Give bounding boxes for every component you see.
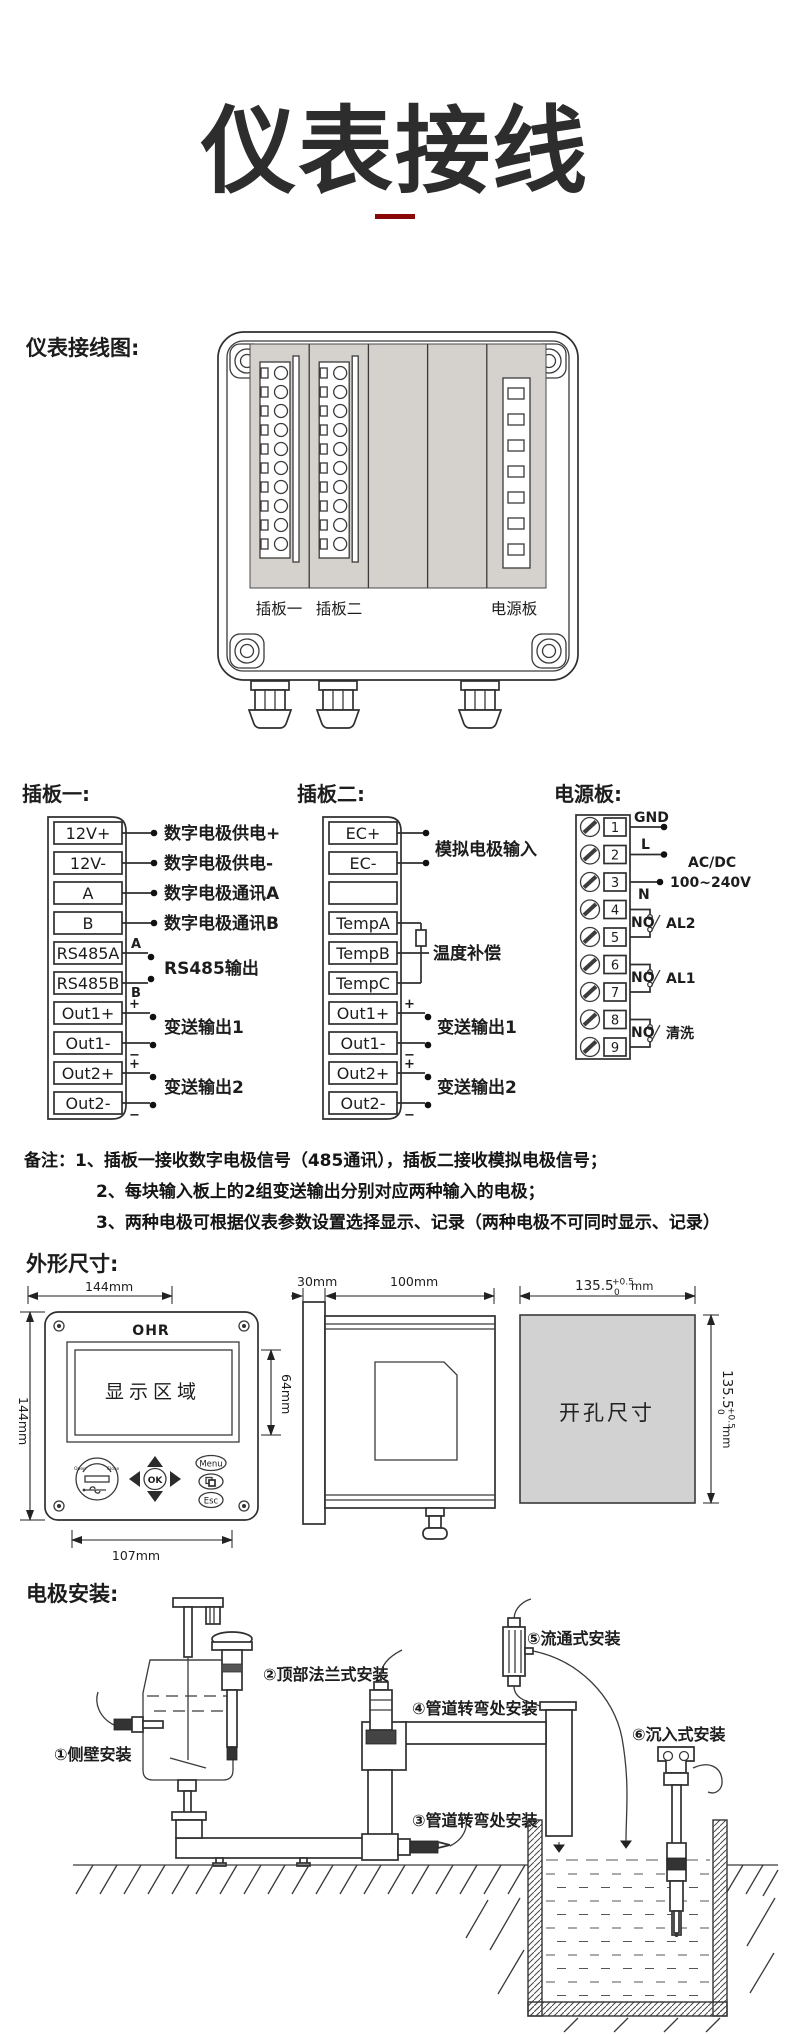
svg-text:温度补偿: 温度补偿 — [433, 943, 501, 964]
no-label: NO — [631, 970, 655, 986]
svg-text:107mm: 107mm — [112, 1548, 160, 1563]
dim-side-depths: 30mm 100mm — [291, 1274, 494, 1304]
display-area-label: 显示区域 — [105, 1381, 201, 1403]
device-wiring-diagram: 插板一 插板二 电源板 — [216, 330, 582, 750]
wire-mark-plus: + — [404, 1057, 415, 1072]
power-slot-label: 电源板 — [491, 600, 538, 618]
svg-text:变送输出2: 变送输出2 — [164, 1077, 244, 1098]
no-label: NO — [631, 1025, 655, 1041]
electrode-sidewall — [97, 1692, 163, 1732]
power-board-diagram: 电源板: 1 2 3 4 5 6 7 8 9 GND L N AC/DC 100… — [548, 775, 790, 1105]
svg-text:144mm: 144mm — [85, 1279, 133, 1294]
power-wires: GND L N AC/DC 100~240V NO AL2 NO AL1 NO … — [630, 810, 751, 1047]
dim-front-height: 144mm — [16, 1312, 45, 1520]
svg-text:数字电极通讯B: 数字电极通讯B — [164, 913, 279, 934]
n-label: N — [638, 887, 650, 903]
wire-mark-a: A — [131, 937, 141, 952]
svg-text:135.5: 135.5 — [575, 1278, 614, 1294]
cable-outflow-arrow — [621, 1840, 631, 1848]
terminal-label: 12V- — [70, 854, 106, 873]
wire-mark-plus: + — [129, 997, 140, 1012]
temp-resistor — [416, 930, 426, 946]
dim-front-bottom: 107mm — [72, 1530, 232, 1563]
terminal-label: Out1- — [66, 1034, 111, 1053]
board1-diagram: 插板一: 12V+ 12V- A B RS485A RS485B Out1+ O… — [18, 775, 296, 1135]
terminal-label: Out2- — [341, 1094, 386, 1113]
reaction-tank — [143, 1598, 233, 1813]
svg-text:7: 7 — [611, 986, 619, 1001]
svg-text:变送输出1: 变送输出1 — [164, 1017, 244, 1038]
board1-wires: A B + − + − — [122, 830, 157, 1123]
terminal-label: Out2+ — [62, 1064, 115, 1083]
install-label-6: ⑥沉入式安装 — [632, 1725, 726, 1744]
terminal-label: Out1+ — [62, 1004, 115, 1023]
svg-text:0: 0 — [715, 1409, 725, 1415]
side-view-drawing: 30mm 100mm — [290, 1270, 510, 1566]
wash-label: 清洗 — [666, 1025, 694, 1042]
slot1-terminal-strip — [260, 356, 299, 562]
terminal-label: Out1+ — [337, 1004, 390, 1023]
note-line-2: 2、每块输入板上的2组变送输出分别对应两种输入的电极； — [24, 1177, 784, 1208]
title-divider — [375, 214, 415, 219]
svg-text:5: 5 — [611, 931, 619, 946]
svg-text:变送输出2: 变送输出2 — [437, 1077, 517, 1098]
power-terminal-strip — [503, 378, 530, 568]
power-title: 电源板: — [554, 782, 622, 806]
svg-text:4: 4 — [611, 904, 619, 919]
ok-button-label[interactable]: OK — [148, 1476, 164, 1486]
electrode-flow-cell — [503, 1599, 545, 1708]
terminal-label: RS485B — [57, 974, 120, 993]
no-label: NO — [631, 915, 655, 931]
page-title: 仪表接线 — [0, 98, 790, 207]
terminal-label: Out2+ — [337, 1064, 390, 1083]
terminal-label: EC+ — [346, 824, 381, 843]
dim-front-width: 144mm — [28, 1279, 172, 1304]
board2-annotations: 模拟电极输入 温度补偿 变送输出1 变送输出2 — [433, 839, 537, 1098]
wire-mark-plus: + — [404, 997, 415, 1012]
board1-title: 插板一: — [22, 782, 90, 806]
installation-diagram: ①侧壁安装 ②顶部法兰式安装 ⑤流通式安装 — [18, 1598, 780, 2034]
svg-text:8: 8 — [611, 1014, 619, 1029]
svg-text:变送输出1: 变送输出1 — [437, 1017, 517, 1038]
notes-block: 备注：1、插板一接收数字电极信号（485通讯），插板二接收模拟电极信号； 2、每… — [24, 1146, 784, 1239]
svg-text:144mm: 144mm — [16, 1397, 31, 1445]
cutout-label: 开孔尺寸 — [559, 1401, 655, 1425]
front-view-drawing: 144mm 144mm OHR 显示区域 Open Close OK Menu — [5, 1270, 295, 1566]
usb-open-label: Open — [74, 1466, 86, 1472]
svg-text:100mm: 100mm — [390, 1274, 438, 1289]
slot1-label: 插板一 — [256, 600, 303, 618]
svg-text:6: 6 — [611, 959, 619, 974]
install-label-1: ①侧壁安装 — [54, 1745, 132, 1764]
svg-text:9: 9 — [611, 1041, 619, 1056]
dim-cutout-height: 135.5 +0.5 0 mm — [703, 1315, 736, 1503]
slot2-terminal-strip — [319, 356, 358, 562]
svg-text:RS485输出: RS485输出 — [164, 958, 259, 979]
board1-annotations: 数字电极供电+ 数字电极供电- 数字电极通讯A 数字电极通讯B RS485输出 … — [164, 823, 280, 1098]
l-label: L — [641, 837, 650, 853]
install-label-2: ②顶部法兰式安装 — [263, 1665, 389, 1684]
terminal-label: TempA — [335, 914, 390, 933]
brand-logo: OHR — [132, 1323, 169, 1339]
board2-diagram: 插板二: EC+ EC- TempA TempB TempC Out1+ Out… — [293, 775, 543, 1135]
notes-prefix: 备注： — [24, 1151, 75, 1171]
svg-text:30mm: 30mm — [297, 1274, 337, 1289]
svg-text:135.5: 135.5 — [719, 1370, 735, 1409]
svg-text:数字电极供电+: 数字电极供电+ — [164, 823, 280, 844]
terminal-label: B — [83, 914, 94, 933]
svg-text:数字电极通讯A: 数字电极通讯A — [164, 883, 280, 904]
dim-cutout-width: 135.5 +0.5 0 mm — [520, 1278, 695, 1305]
terminal-label: Out2- — [66, 1094, 111, 1113]
svg-text:0: 0 — [614, 1288, 620, 1298]
install-label-5: ⑤流通式安装 — [527, 1629, 621, 1648]
menu-button-label[interactable]: Menu — [199, 1460, 222, 1470]
al2-label: AL2 — [666, 916, 696, 932]
wire-mark-plus: + — [129, 1057, 140, 1072]
acdc-label: AC/DC — [688, 855, 736, 871]
terminal-label: TempC — [335, 974, 390, 993]
note-line-3: 3、两种电极可根据仪表参数设置选择显示、记录（两种电极不可同时显示、记录） — [24, 1208, 784, 1239]
svg-text:模拟电极输入: 模拟电极输入 — [435, 839, 537, 860]
side-cable-gland — [423, 1508, 447, 1539]
terminal-label: Out1- — [341, 1034, 386, 1053]
usb-close-label: Close — [107, 1466, 119, 1472]
terminal-label: RS485A — [57, 944, 120, 963]
board2-wires: + − + − — [397, 830, 431, 1123]
svg-text:mm: mm — [720, 1426, 734, 1448]
gnd-label: GND — [634, 810, 669, 826]
terminal-label: TempB — [335, 944, 390, 963]
terminal-label: EC- — [349, 854, 376, 873]
cable-glands — [249, 681, 501, 728]
wiring-diagram-label: 仪表接线图: — [26, 332, 139, 362]
terminal-label: 12V+ — [66, 824, 111, 843]
svg-text:数字电极供电-: 数字电极供电- — [164, 853, 273, 874]
install-label-3: ③管道转弯处安装 — [412, 1811, 538, 1830]
terminal-label: A — [83, 884, 94, 903]
acdc-voltage: 100~240V — [670, 875, 751, 891]
slot2-label: 插板二 — [316, 600, 363, 618]
svg-text:2: 2 — [611, 849, 619, 864]
pipe-outflow-arrow — [554, 1842, 564, 1852]
side-body — [303, 1302, 495, 1539]
board2-title: 插板二: — [297, 782, 365, 806]
svg-text:3: 3 — [611, 876, 619, 891]
svg-text:1: 1 — [611, 821, 619, 836]
esc-button-label[interactable]: Esc — [204, 1497, 219, 1507]
install-label-4: ④管道转弯处安装 — [412, 1699, 538, 1718]
svg-text:mm: mm — [631, 1279, 653, 1293]
note-line-1: 备注：1、插板一接收数字电极信号（485通讯），插板二接收模拟电极信号； — [24, 1146, 784, 1177]
al1-label: AL1 — [666, 971, 696, 987]
wire-mark-minus: − — [404, 1108, 415, 1123]
electrode-top-flange — [212, 1632, 252, 1760]
power-terminals: 1 2 3 4 5 6 7 8 9 — [581, 818, 627, 1057]
wire-mark-minus: − — [129, 1108, 140, 1123]
cutout-drawing: 135.5 +0.5 0 mm 开孔尺寸 135.5 +0.5 0 mm — [512, 1270, 790, 1566]
